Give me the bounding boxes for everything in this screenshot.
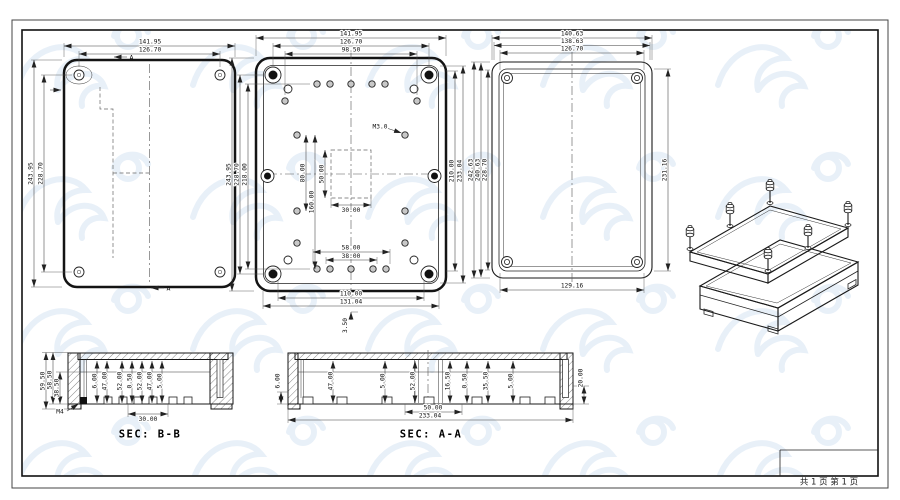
dim-bb-left-1: 59.50 [40, 371, 47, 390]
svg-text:52.00: 52.00 [117, 371, 124, 390]
dim-v3-bottom: 129.16 [561, 283, 584, 290]
svg-text:M3.0: M3.0 [373, 124, 388, 131]
dim-v2-right-1: 210.00 [449, 160, 456, 183]
svg-text:M4: M4 [56, 409, 64, 416]
svg-text:35.50: 35.50 [483, 371, 490, 390]
dim-v2-pocket-h: 50.00 [319, 164, 326, 183]
section-aa-title: SEC: A-A [400, 429, 463, 441]
dim-v2-bottom-58: 58.00 [342, 245, 361, 252]
engineering-drawing: 共 1 页 第 1 页 141.95 126.70 243.95 228.70 … [0, 0, 900, 500]
svg-text:16.50: 16.50 [445, 371, 452, 390]
svg-text:47.00: 47.00 [102, 371, 109, 390]
page-footer: 共 1 页 第 1 页 [800, 477, 858, 488]
dim-v3-top-3: 126.70 [561, 46, 584, 53]
dim-v2-bottom-110: 110.00 [340, 291, 363, 298]
dim-bb-left-3: 38.50 [54, 378, 61, 397]
drawing-page: 共 1 页 第 1 页 141.95 126.70 243.95 228.70 … [0, 0, 900, 500]
svg-text:3.50: 3.50 [342, 318, 349, 333]
dim-v3-top-2: 138.63 [561, 38, 584, 45]
svg-text:6.00: 6.00 [92, 373, 99, 388]
svg-text:52.00: 52.00 [137, 371, 144, 390]
dim-v1-top-holes: 126.70 [139, 47, 162, 54]
dim-v1-top-outer: 141.95 [139, 39, 162, 46]
dim-v3-left-1: 242.63 [468, 159, 475, 182]
dim-v2-top-1: 141.95 [340, 31, 363, 38]
dim-v2-pocket-w: 30.00 [342, 207, 361, 214]
dim-bb-left-2: 58.50 [47, 370, 54, 389]
dim-aa-bottom-50: 50.00 [424, 405, 443, 412]
svg-text:5.00: 5.00 [380, 373, 387, 388]
svg-text:A: A [167, 285, 171, 293]
section-bb-title: SEC: B-B [119, 429, 182, 441]
dim-v2-bottom-38: 38.00 [342, 253, 361, 260]
svg-text:5.00: 5.00 [157, 373, 164, 388]
dim-v3-left-2: 240.63 [475, 159, 482, 182]
svg-text:0.50: 0.50 [127, 373, 134, 388]
dim-v2-bottom-131: 131.04 [340, 299, 363, 306]
dim-v1-left-outer: 243.95 [28, 162, 35, 185]
dim-aa-right: 20.00 [578, 368, 585, 387]
dim-v2-right-2: 233.04 [457, 160, 464, 183]
svg-text:0.50: 0.50 [462, 373, 469, 388]
m4-insert [80, 397, 87, 404]
svg-text:5.00: 5.00 [508, 373, 515, 388]
svg-text:52.00: 52.00 [410, 371, 417, 390]
svg-text:47.00: 47.00 [147, 371, 154, 390]
dim-aa-bottom-233: 233.04 [419, 413, 442, 420]
dim-v2-top-2: 126.70 [340, 39, 363, 46]
dim-v1-left-holes: 228.70 [38, 162, 45, 185]
watermark-pattern [22, 30, 878, 476]
dim-v3-top-1: 140.63 [561, 31, 584, 38]
dim-bb-bottom: 30.00 [139, 416, 158, 423]
dim-v3-right: 231.16 [662, 159, 669, 182]
dim-aa-left: 6.00 [275, 373, 282, 388]
svg-text:47.00: 47.00 [328, 371, 335, 390]
dim-v2-left-3: 218.00 [242, 163, 249, 186]
dim-v2-left-1: 243.95 [226, 163, 233, 186]
dim-v3-left-3: 228.70 [482, 159, 489, 182]
dim-v2-top-3: 98.50 [342, 47, 361, 54]
svg-text:A: A [130, 54, 134, 62]
dim-v2-inner-160: 160.00 [309, 191, 316, 214]
dim-v2-inner-80: 80.00 [300, 163, 307, 182]
dim-v2-left-2: 228.70 [234, 163, 241, 186]
